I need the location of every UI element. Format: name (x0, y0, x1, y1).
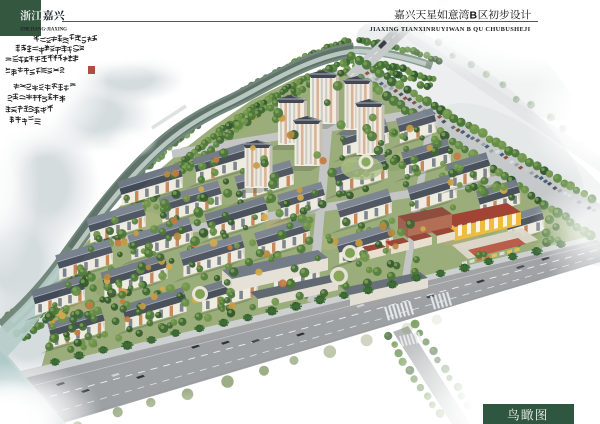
svg-text:JIAXING TIANXINRUYIWAN B QU CH: JIAXING TIANXINRUYIWAN B QU CHUBUSHEJI (370, 26, 531, 33)
svg-text:ZHEJIANG·JIAXING: ZHEJIANG·JIAXING (20, 28, 67, 33)
svg-text:B: B (470, 10, 478, 22)
